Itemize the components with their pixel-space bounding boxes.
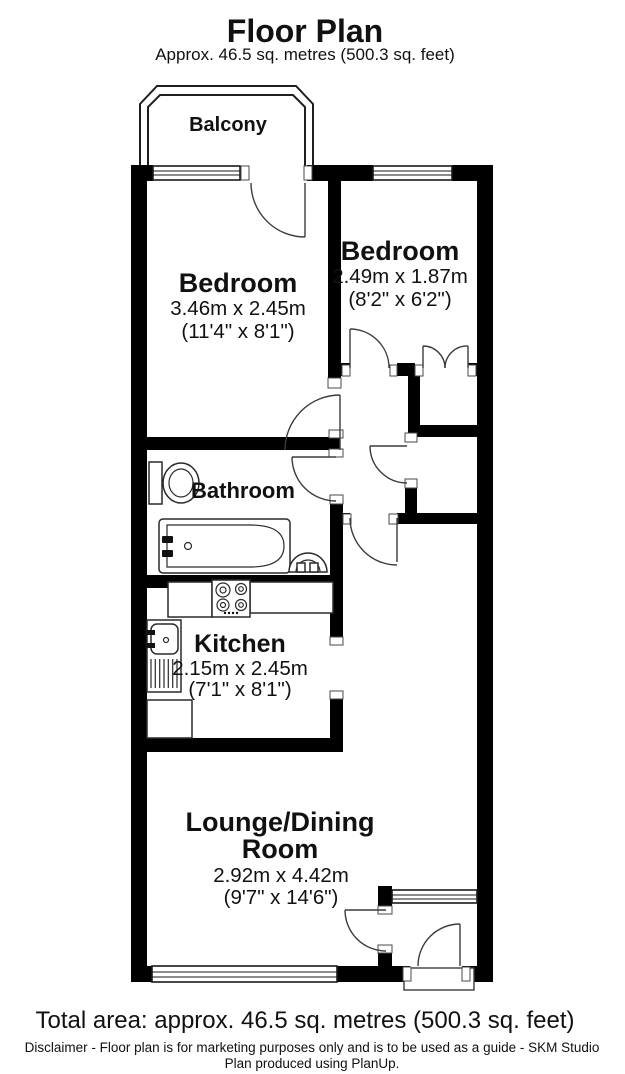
bathroom-label: Bathroom: [191, 478, 295, 503]
window-bedroom1: [153, 166, 240, 180]
wall-segment: [131, 966, 152, 982]
disclaimer-line2: Plan produced using PlanUp.: [225, 1056, 400, 1071]
bedroom1-metric: 3.46m x 2.45m: [170, 297, 306, 320]
balcony-label: Balcony: [189, 114, 268, 136]
bedroom1-imperial: (11'4" x 8'1"): [181, 320, 294, 343]
bathroom-door: [292, 457, 336, 501]
disclaimer-line1: Disclaimer - Floor plan is for marketing…: [25, 1040, 600, 1055]
bedroom2-label: Bedroom 2.49m x 1.87m (8'2" x 6'2"): [332, 236, 468, 311]
wall-segment: [378, 952, 392, 968]
window-porch: [392, 890, 477, 903]
front-entry-door: [418, 924, 460, 966]
wall-segment: [408, 376, 420, 428]
hob-icon: [212, 580, 250, 617]
wall-segment: [378, 886, 392, 908]
cupboard-door: [370, 446, 407, 483]
bedroom2-closet-doors: [423, 346, 468, 368]
bedroom2-name: Bedroom: [341, 236, 460, 266]
wall-segment: [408, 425, 477, 437]
bedroom1-name: Bedroom: [179, 268, 298, 298]
window-lounge: [152, 966, 337, 982]
wall-segment: [337, 966, 410, 982]
page-title: Floor Plan: [227, 13, 383, 49]
lounge-name-line2: Room: [242, 834, 319, 864]
wall-segment: [397, 363, 415, 376]
wall-segment: [307, 165, 373, 181]
page-subtitle: Approx. 46.5 sq. metres (500.3 sq. feet): [155, 45, 455, 64]
kitchen-label: Kitchen 2.15m x 2.45m (7'1" x 8'1"): [172, 630, 308, 701]
bedroom2-imperial: (8'2" x 6'2"): [348, 288, 451, 311]
lounge-metric: 2.92m x 4.42m: [213, 864, 349, 887]
wall-segment: [131, 165, 147, 982]
wall-segment: [477, 165, 493, 982]
wall-segment: [131, 165, 153, 181]
lounge-label: Lounge/Dining Room 2.92m x 4.42m (9'7" x…: [186, 807, 375, 909]
wall-segment: [405, 488, 417, 517]
lounge-imperial: (9'7" x 14'6"): [224, 886, 339, 909]
floor-plan-drawing: Floor Plan Approx. 46.5 sq. metres (500.…: [0, 0, 625, 1074]
bathroom-sink-icon: [289, 553, 327, 572]
wall-segment: [147, 738, 343, 752]
kitchen-sink-icon: [145, 620, 181, 692]
bedroom2-metric: 2.49m x 1.87m: [332, 265, 468, 288]
wall-segment: [397, 513, 477, 524]
bathtub-icon: [159, 519, 290, 573]
floor-plan-page: Floor Plan Approx. 46.5 sq. metres (500.…: [0, 0, 625, 1074]
total-area-text: Total area: approx. 46.5 sq. metres (500…: [36, 1007, 575, 1034]
lounge-name-line1: Lounge/Dining: [186, 807, 375, 837]
kitchen-imperial: (7'1" x 8'1"): [188, 678, 291, 701]
window-bedroom2: [373, 166, 452, 180]
wall-segment: [147, 437, 340, 450]
bedroom1-label: Bedroom 3.46m x 2.45m (11'4" x 8'1"): [170, 268, 306, 343]
kitchen-metric: 2.15m x 2.45m: [172, 657, 308, 680]
hallway-door: [350, 518, 397, 565]
kitchen-name: Kitchen: [194, 630, 286, 658]
balcony-door: [251, 183, 305, 237]
bedroom2-door: [350, 329, 389, 368]
wall-segment: [452, 165, 493, 181]
